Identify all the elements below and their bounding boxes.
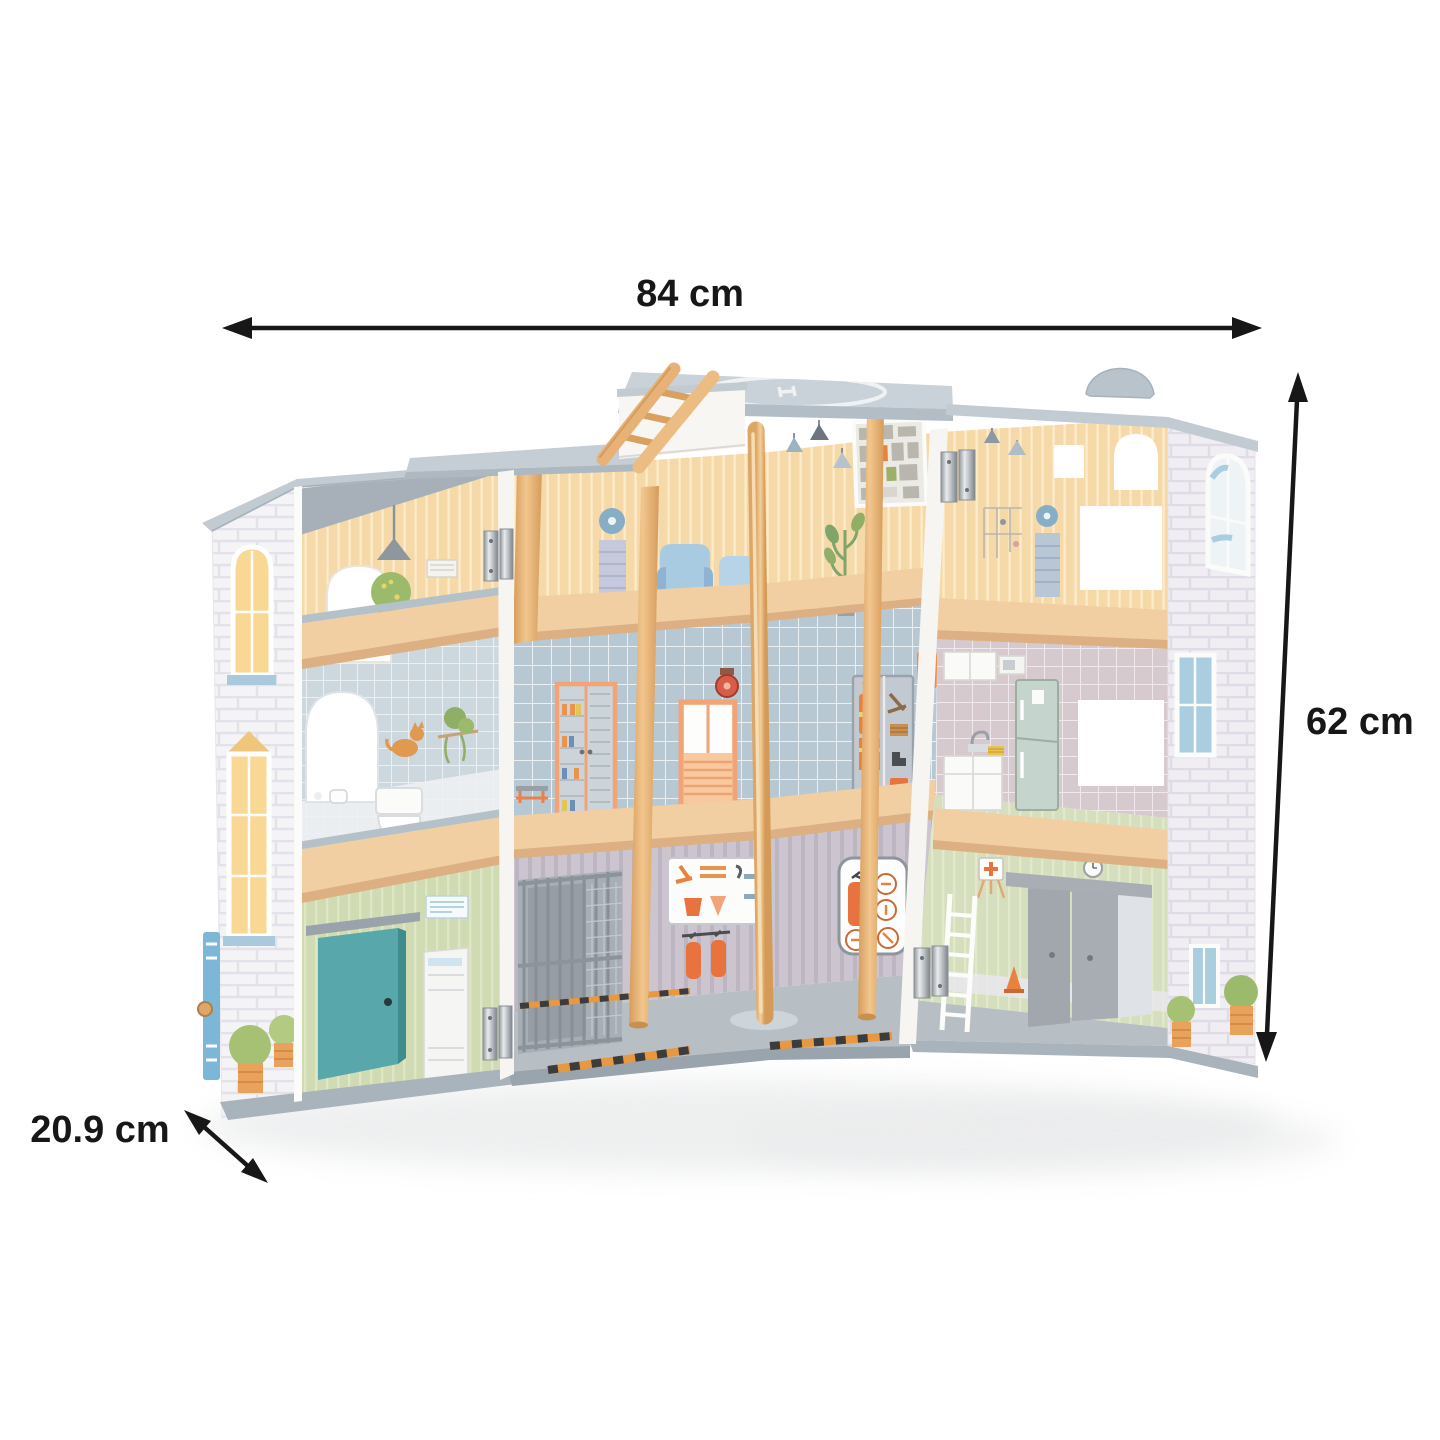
window-with-shutters-print — [681, 702, 735, 806]
width-arrow — [222, 317, 1262, 339]
fan-icon — [1035, 505, 1060, 597]
center-section — [508, 407, 952, 1086]
exterior-window-icon — [1191, 946, 1218, 1006]
window-cutout — [1054, 445, 1084, 478]
garage-door — [1028, 888, 1152, 1027]
left-panel-exterior-wall — [198, 481, 299, 1118]
left-panel-interior — [297, 463, 508, 1100]
wall-vent — [427, 560, 457, 577]
arch-cutout — [1114, 434, 1158, 490]
wooden-post — [513, 468, 542, 644]
exterior-window-icon — [223, 731, 275, 946]
right-panel-exterior-wall — [1167, 418, 1258, 1064]
window-cutout — [1078, 700, 1164, 786]
product-photo: 84 cm 62 cm 20.9 cm — [0, 0, 1440, 1440]
hinge-icon — [483, 1006, 512, 1060]
door-knob — [198, 1002, 212, 1016]
hinge-icon — [484, 529, 513, 581]
exterior-window-icon — [1177, 655, 1214, 755]
height-label: 62 cm — [1306, 701, 1414, 743]
fan-icon — [599, 508, 626, 601]
dollhouse-illustration: 84 cm 62 cm 20.9 cm — [0, 0, 1440, 1440]
gear-locker-print — [557, 684, 615, 822]
height-arrow — [1256, 372, 1308, 1062]
city-map-poster — [854, 420, 927, 506]
width-annotation: 84 cm — [222, 273, 1262, 339]
arch-opening — [306, 692, 378, 802]
exterior-window-icon — [227, 547, 276, 685]
width-label: 84 cm — [636, 273, 744, 315]
roof-arch-decoration — [1086, 368, 1154, 398]
teal-door — [318, 928, 406, 1080]
window-cutout — [1080, 506, 1162, 590]
left-panel — [198, 462, 516, 1120]
exterior-window-icon — [1208, 456, 1248, 574]
height-annotation: 62 cm — [1256, 372, 1414, 1062]
locker-machine — [424, 948, 468, 1086]
chain-link-gate — [518, 870, 622, 1054]
info-sign — [426, 896, 468, 918]
depth-label: 20.9 cm — [30, 1109, 169, 1151]
